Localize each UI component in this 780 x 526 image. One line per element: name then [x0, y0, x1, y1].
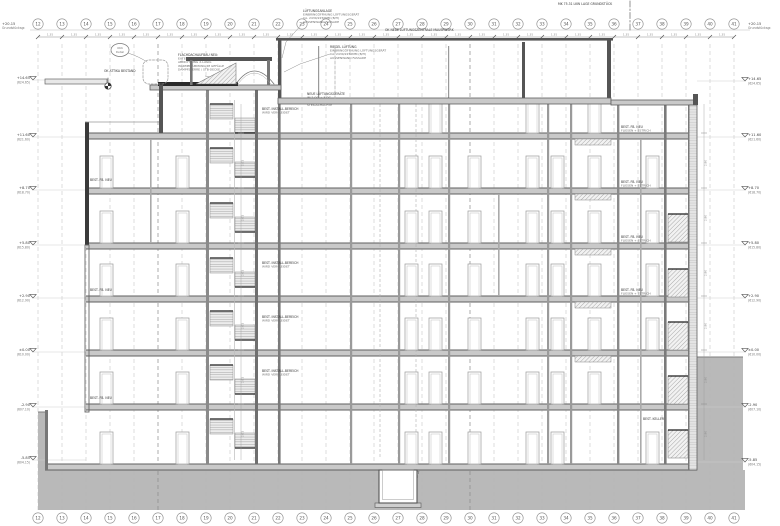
- right-stair-flight: [668, 376, 688, 404]
- stair-flight: [210, 104, 233, 119]
- axis-number-bottom-19: 19: [203, 516, 209, 521]
- right-stair-flight: [668, 269, 688, 297]
- wall: [547, 104, 549, 464]
- axis-number-bottom-13: 13: [59, 516, 65, 521]
- axis-number-top-37: 37: [635, 22, 641, 27]
- left-facade-lower: [85, 245, 89, 412]
- floor-slab: [86, 350, 697, 356]
- detail-boundary: [143, 60, 168, 84]
- wall: [278, 104, 281, 464]
- stair-flight: [235, 217, 255, 232]
- bay-dimension: 1.35: [431, 33, 437, 37]
- axis-number-top-14: 14: [83, 22, 89, 27]
- roof-arch-canopy-inner: [238, 73, 271, 84]
- bay-dimension: 1.35: [143, 33, 149, 37]
- level-absolute: (612.90): [17, 298, 30, 302]
- axis-number-top-25: 25: [347, 22, 353, 27]
- axis-number-top-13: 13: [59, 22, 65, 27]
- bay-dimension: 1.35: [599, 33, 605, 37]
- axis-number-top-41: 41: [731, 22, 737, 27]
- level-value: +2.90: [748, 294, 760, 298]
- boundary-level-label: Grundstücksgr.: [748, 26, 771, 30]
- story-dimension: 2.61: [241, 215, 245, 221]
- penthouse-floor-slab: [278, 98, 611, 104]
- bay-dimension: 1.35: [263, 33, 269, 37]
- tower-facade: [159, 85, 163, 133]
- level-absolute: (610.00): [17, 352, 30, 356]
- stair-flight: [235, 162, 255, 177]
- axis-number-top-26: 26: [371, 22, 377, 27]
- floor-slab: [86, 133, 697, 139]
- wall: [350, 104, 352, 464]
- level-value: +14.65: [748, 77, 761, 81]
- level-value: ±0.00: [19, 348, 31, 352]
- wall: [255, 90, 258, 464]
- stair-flight: [210, 148, 233, 163]
- annotation-text: WIRD VERKLEIDET: [262, 319, 290, 323]
- axis-number-bottom-37: 37: [635, 516, 641, 521]
- axis-number-bottom-36: 36: [611, 516, 617, 521]
- concrete-beam: [575, 249, 611, 255]
- axis-number-top-35: 35: [587, 22, 593, 27]
- level-value: -2.90: [21, 403, 31, 407]
- axis-number-bottom-39: 39: [683, 516, 689, 521]
- level-absolute: (604.15): [748, 462, 761, 466]
- axis-number-bottom-35: 35: [587, 516, 593, 521]
- wall: [206, 90, 209, 464]
- bay-dimension: 1.35: [191, 33, 197, 37]
- wall: [150, 139, 152, 243]
- level-absolute: (624.65): [748, 81, 761, 85]
- story-dimension: 2.90: [704, 377, 708, 383]
- concrete-beam: [575, 356, 611, 362]
- annotation-text: MK 75.31 LKW LAGE GRUNDSTÜCK: [558, 1, 613, 6]
- axis-number-bottom-32: 32: [515, 516, 521, 521]
- wall: [617, 104, 619, 464]
- bay-dimension: 1.35: [335, 33, 341, 37]
- annotation-text: AUSSENWAND FASSADE: [303, 20, 339, 24]
- annotation-text: BEST. FB. NEU: [90, 288, 112, 292]
- bay-dimension: 1.35: [167, 33, 173, 37]
- wall: [448, 46, 449, 98]
- axis-number-bottom-22: 22: [275, 516, 281, 521]
- stair-flight: [210, 419, 233, 434]
- annotation-text: AUSSENWAND FASSADE: [330, 56, 366, 60]
- wall: [498, 194, 500, 296]
- bay-dimension: 1.35: [311, 33, 317, 37]
- level-value: +8.70: [748, 186, 760, 190]
- floor-slab: [45, 464, 697, 470]
- wall: [234, 100, 235, 460]
- story-dimension: 2.90: [704, 160, 708, 166]
- wall: [448, 104, 450, 464]
- level-absolute: (615.80): [748, 245, 761, 249]
- story-dimension: 2.61: [241, 270, 245, 276]
- level-absolute: (615.80): [17, 245, 30, 249]
- axis-number-bottom-21: 21: [251, 516, 257, 521]
- level-triangle-icon: [30, 348, 36, 352]
- axis-number-top-32: 32: [515, 22, 521, 27]
- grid-axes-layer: 12121.3513131.3514141.3515151.3516161.35…: [30, 19, 750, 523]
- bay-dimension: 1.35: [95, 33, 101, 37]
- bay-dimension: 1.35: [503, 33, 509, 37]
- axis-number-top-16: 16: [131, 22, 137, 27]
- building-section-svg: 12121.3513131.3514141.3515151.3516161.35…: [0, 0, 780, 526]
- annotation-text: WIRD VERKLEIDET: [262, 265, 290, 269]
- axis-number-top-17: 17: [155, 22, 161, 27]
- axis-number-bottom-41: 41: [731, 516, 737, 521]
- axis-number-top-38: 38: [659, 22, 665, 27]
- axis-number-top-12: 12: [35, 22, 41, 27]
- axis-number-top-34: 34: [563, 22, 569, 27]
- axis-number-top-30: 30: [467, 22, 473, 27]
- floor-slab: [86, 188, 697, 194]
- bay-dimension: 1.35: [239, 33, 245, 37]
- axis-number-bottom-25: 25: [347, 516, 353, 521]
- level-value: +2.90: [19, 294, 31, 298]
- axis-number-bottom-30: 30: [467, 516, 473, 521]
- annotation-text: BEST. FB. NEU: [90, 178, 112, 182]
- right-wing-roof-slab: [611, 100, 697, 105]
- annotation-text: WIRD VERKLEIDET: [262, 373, 290, 377]
- concrete-beam: [575, 302, 611, 308]
- level-value: +14.65: [17, 76, 30, 80]
- bay-dimension: 1.35: [383, 33, 389, 37]
- annotation-text: FLIESEN + ESTRICH: [621, 129, 651, 133]
- axis-number-top-40: 40: [707, 22, 713, 27]
- level-triangle-icon: [30, 294, 36, 298]
- story-dimension: 2.61: [241, 431, 245, 437]
- stair-flight: [235, 379, 255, 394]
- axis-number-top-39: 39: [683, 22, 689, 27]
- annotation-text: OK ATTIKA BESTAND: [104, 69, 136, 73]
- axis-number-bottom-18: 18: [179, 516, 185, 521]
- axis-number-bottom-14: 14: [83, 516, 89, 521]
- detail-bubble-line2: Detail: [116, 50, 124, 54]
- level-absolute: (607.10): [17, 407, 30, 411]
- bay-dimension: 1.35: [47, 33, 53, 37]
- concrete-beam: [575, 194, 611, 200]
- story-dimension: 2.61: [241, 323, 245, 329]
- bay-dimension: 1.35: [479, 33, 485, 37]
- stair-flight: [235, 325, 255, 340]
- axis-number-bottom-15: 15: [107, 516, 113, 521]
- level-absolute: (610.00): [748, 352, 761, 356]
- penthouse-wall-right: [607, 40, 611, 100]
- penthouse-parapet: [276, 38, 613, 41]
- bay-dimension: 1.35: [455, 33, 461, 37]
- axis-number-top-31: 31: [491, 22, 497, 27]
- wall: [664, 104, 667, 464]
- level-absolute: (612.90): [748, 298, 761, 302]
- axis-number-bottom-16: 16: [131, 516, 137, 521]
- boundary-level-label: Grundstücksgr.: [2, 26, 25, 30]
- floor-slab: [86, 243, 697, 249]
- level-absolute: (621.60): [17, 137, 30, 141]
- annotation-text: FLIESEN + ESTRICH: [621, 184, 651, 188]
- axis-number-bottom-17: 17: [155, 516, 161, 521]
- bulkhead-wall-left: [190, 60, 193, 85]
- bay-dimension: 1.35: [287, 33, 293, 37]
- bay-dimension: 1.35: [215, 33, 221, 37]
- annotation-text: WIRD VERKLEIDET: [262, 111, 290, 115]
- roof-assembly: OKK Detail: [45, 1, 698, 105]
- axis-number-bottom-38: 38: [659, 516, 665, 521]
- right-stair-flight: [668, 322, 688, 350]
- bay-dimension: 1.35: [71, 33, 77, 37]
- left-basement-wall: [45, 410, 48, 470]
- level-absolute: (624.65): [17, 80, 30, 84]
- level-absolute: (604.15): [17, 460, 30, 464]
- axis-number-top-15: 15: [107, 22, 113, 27]
- stair-flight: [210, 365, 233, 380]
- level-value: ±0.00: [748, 348, 760, 352]
- bay-dimension: 1.35: [575, 33, 581, 37]
- level-value: +11.60: [17, 133, 31, 137]
- floor-slab: [86, 404, 697, 410]
- left-canopy: [45, 79, 107, 84]
- elevator-pit: [375, 470, 421, 508]
- axis-number-top-28: 28: [419, 22, 425, 27]
- level-triangle-icon: [30, 186, 36, 190]
- axis-number-bottom-27: 27: [395, 516, 401, 521]
- level-absolute: (621.60): [748, 137, 761, 141]
- axis-number-bottom-33: 33: [539, 516, 545, 521]
- right-facade: [689, 105, 697, 470]
- axis-number-top-29: 29: [443, 22, 449, 27]
- bay-dimension: 1.35: [719, 33, 725, 37]
- wall: [398, 104, 400, 464]
- axis-number-top-18: 18: [179, 22, 185, 27]
- level-triangle-icon: [30, 133, 36, 137]
- stair-flight: [210, 311, 233, 326]
- wall: [318, 46, 319, 98]
- stair-flight: [235, 272, 255, 287]
- annotation-text: BEST. FB. NEU: [90, 396, 112, 400]
- wall: [640, 139, 642, 464]
- detail-bubble-leader: [128, 53, 147, 62]
- annotation-text: FLIESEN + ESTRICH: [621, 292, 651, 296]
- axis-number-bottom-40: 40: [707, 516, 713, 521]
- left-facade-upper: [85, 122, 89, 245]
- axis-number-top-21: 21: [251, 22, 257, 27]
- axis-number-bottom-12: 12: [35, 516, 41, 521]
- axis-number-bottom-29: 29: [443, 516, 449, 521]
- axis-number-bottom-23: 23: [299, 516, 305, 521]
- right-parapet: [693, 94, 698, 105]
- bay-dimension: 1.35: [647, 33, 653, 37]
- level-value: +5.80: [748, 241, 760, 245]
- annotation-text: DAMPFSPERRE / STB-DECKE: [178, 67, 220, 71]
- right-stair-flight: [668, 430, 688, 458]
- annotation-leader: [284, 54, 330, 72]
- level-value: +8.70: [19, 186, 31, 190]
- axis-number-top-27: 27: [395, 22, 401, 27]
- axis-number-bottom-31: 31: [491, 516, 497, 521]
- level-triangle-icon: [30, 403, 36, 407]
- axis-number-top-22: 22: [275, 22, 281, 27]
- axis-number-top-20: 20: [227, 22, 233, 27]
- bay-dimension: 1.35: [527, 33, 533, 37]
- bay-dimension: 1.35: [551, 33, 557, 37]
- level-triangle-icon: [30, 76, 36, 80]
- level-value: +5.80: [19, 241, 31, 245]
- level-value: -5.85: [748, 458, 757, 462]
- bay-dimension: 1.35: [695, 33, 701, 37]
- story-dimension: 2.90: [704, 431, 708, 437]
- axis-number-top-19: 19: [203, 22, 209, 27]
- stair-flight: [235, 433, 255, 448]
- bay-dimension: 1.35: [623, 33, 629, 37]
- axis-number-top-36: 36: [611, 22, 617, 27]
- level-value: +11.60: [748, 133, 762, 137]
- annotation-text: BEST. KELLER: [643, 417, 665, 421]
- story-dimension: 2.61: [241, 160, 245, 166]
- right-stair-flight: [668, 214, 688, 242]
- bay-dimension: 1.35: [119, 33, 125, 37]
- story-dimension: 2.90: [704, 270, 708, 276]
- level-absolute: (607.10): [748, 407, 761, 411]
- annotation-text: OK NEUE LÜFTUNGSZENTRALE MAUERWERK: [385, 27, 455, 32]
- concrete-beam: [575, 139, 611, 145]
- story-dimension: 2.90: [704, 323, 708, 329]
- wall: [570, 104, 572, 464]
- level-value: -2.90: [748, 403, 758, 407]
- level-absolute: (618.70): [17, 190, 30, 194]
- section-drawing-canvas: 12121.3513131.3514141.3515151.3516161.35…: [0, 0, 780, 526]
- bay-dimension: 1.35: [671, 33, 677, 37]
- bulkhead-roof: [186, 57, 272, 61]
- level-triangle-icon: [30, 456, 36, 460]
- story-dimension: 2.61: [241, 377, 245, 383]
- bay-dimension: 1.35: [407, 33, 413, 37]
- level-value: -5.85: [21, 456, 30, 460]
- annotation-text: FLIESEN + ESTRICH: [621, 239, 651, 243]
- wall: [522, 42, 525, 98]
- level-absolute: (618.70): [748, 190, 761, 194]
- story-dimension: 2.90: [704, 215, 708, 221]
- bay-dimension: 1.35: [359, 33, 365, 37]
- axis-number-bottom-24: 24: [323, 516, 329, 521]
- axis-number-bottom-34: 34: [563, 516, 569, 521]
- axis-number-bottom-20: 20: [227, 516, 233, 521]
- axis-number-top-33: 33: [539, 22, 545, 27]
- level-triangle-icon: [30, 241, 36, 245]
- floor-slab: [86, 296, 697, 302]
- axis-number-bottom-28: 28: [419, 516, 425, 521]
- stair-flight: [210, 203, 233, 218]
- stair-flight: [210, 258, 233, 273]
- stair-flight: [235, 118, 255, 133]
- penthouse-wall-left: [278, 40, 281, 100]
- axis-number-bottom-26: 26: [371, 516, 377, 521]
